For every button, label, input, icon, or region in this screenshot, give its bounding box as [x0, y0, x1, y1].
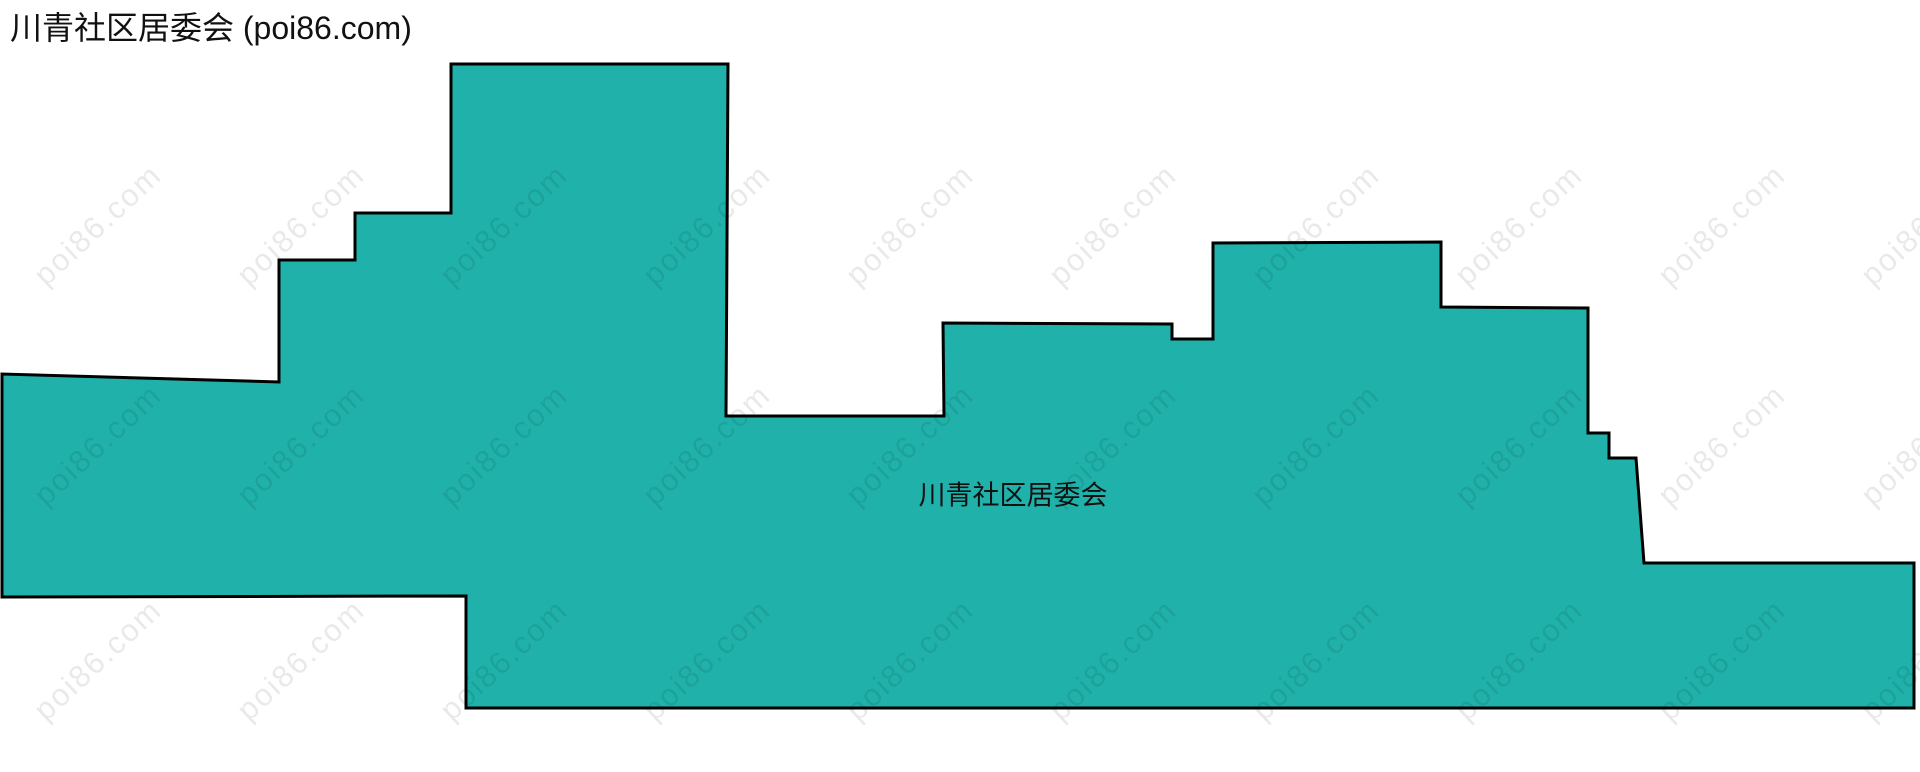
map-canvas: poi86.compoi86.compoi86.compoi86.compoi8…	[0, 0, 1920, 772]
region-label: 川青社区居委会	[919, 474, 1108, 513]
page-title: 川青社区居委会 (poi86.com)	[10, 8, 412, 48]
region-boundary-polygon	[2, 64, 1914, 708]
region-map-svg	[0, 0, 1920, 772]
